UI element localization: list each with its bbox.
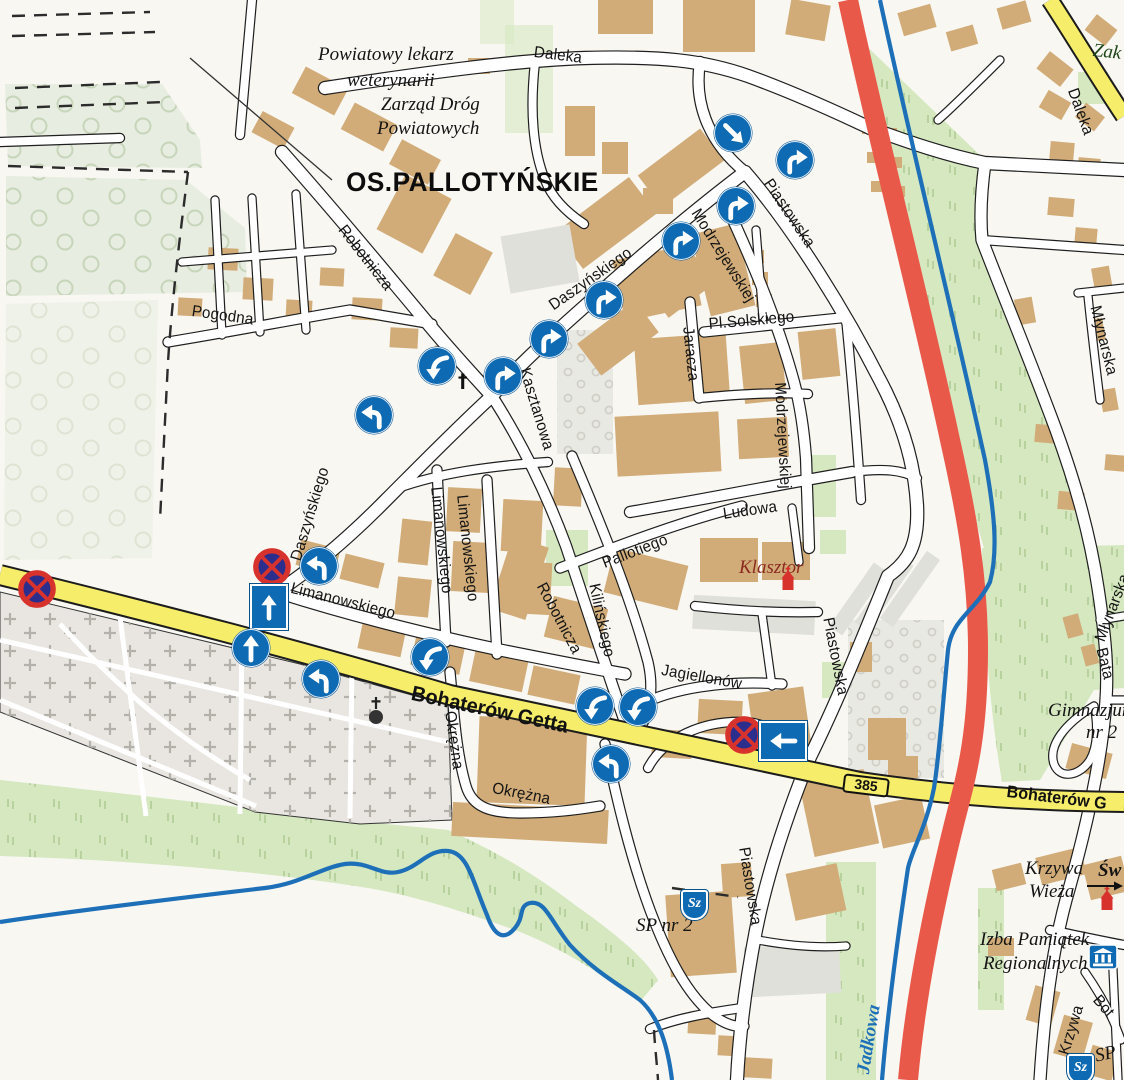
turn-right-sign-icon — [717, 187, 755, 225]
museum-icon — [1088, 944, 1118, 970]
turn-back-sign-icon — [411, 638, 449, 676]
poi-label-krzywa-wieza-line1: Krzywa — [1025, 858, 1083, 880]
poi-label-vet-line2: weterynarii — [347, 70, 435, 92]
turn-right-sign-icon — [585, 281, 623, 319]
place-label-zak-partial: Zak — [1092, 40, 1123, 65]
church-icon-klasztor — [778, 566, 798, 592]
poi-label-roads-dept-line2: Powiatowych — [377, 118, 479, 140]
area-title: OS.PALLOTYŃSKIE — [346, 167, 599, 198]
school-shield-icon: Sz — [681, 890, 708, 920]
cemetery-chapel-icon — [366, 696, 386, 726]
poi-label-izba-line1: Izba Pamiątek — [980, 929, 1089, 951]
one-way-diagonal-sign-icon — [714, 114, 752, 152]
turn-back-sign-icon — [418, 347, 456, 385]
church-cross-icon: † — [458, 370, 468, 392]
ahead-only-sign-icon — [232, 629, 270, 667]
poi-label-gimnazjum-line1: Gimnazjum — [1048, 700, 1124, 722]
no-stopping-sign-icon — [725, 716, 763, 754]
pointer-arrow-icon — [1086, 879, 1124, 891]
poi-label-sp-nr-2: SP nr 2 — [636, 915, 693, 937]
turn-right-sign-icon — [484, 357, 522, 395]
school-shield-icon: Sz — [1067, 1054, 1094, 1080]
turn-back-sign-icon — [619, 688, 657, 726]
poi-label-roads-dept-line1: Zarząd Dróg — [381, 94, 480, 116]
turn-right-sign-icon — [776, 141, 814, 179]
turn-left-sign-icon — [300, 547, 338, 585]
turn-right-sign-icon — [530, 320, 568, 358]
map-canvas: OS.PALLOTYŃSKIE Daleka Daleka Pogodna Ro… — [0, 0, 1124, 1080]
poi-label-krzywa-wieza-line2: Wieża — [1029, 881, 1074, 903]
turn-right-sign-icon — [662, 222, 700, 260]
one-way-left-sign-icon — [759, 721, 807, 761]
turn-left-sign-icon — [355, 396, 393, 434]
turn-left-sign-icon — [302, 660, 340, 698]
turn-left-sign-icon — [592, 745, 630, 783]
turn-back-sign-icon — [576, 687, 614, 725]
poi-label-izba-line2: Regionalnych — [983, 953, 1087, 975]
poi-label-vet-line1: Powiatowy lekarz — [318, 44, 454, 66]
map-base-graphics — [0, 0, 1124, 1080]
no-stopping-sign-icon — [18, 570, 56, 608]
poi-label-sp-partial: SP — [1093, 1042, 1118, 1068]
poi-label-gimnazjum-line2: nr 2 — [1086, 722, 1117, 744]
one-way-up-sign-icon — [250, 584, 288, 630]
no-stopping-sign-icon — [253, 548, 291, 586]
